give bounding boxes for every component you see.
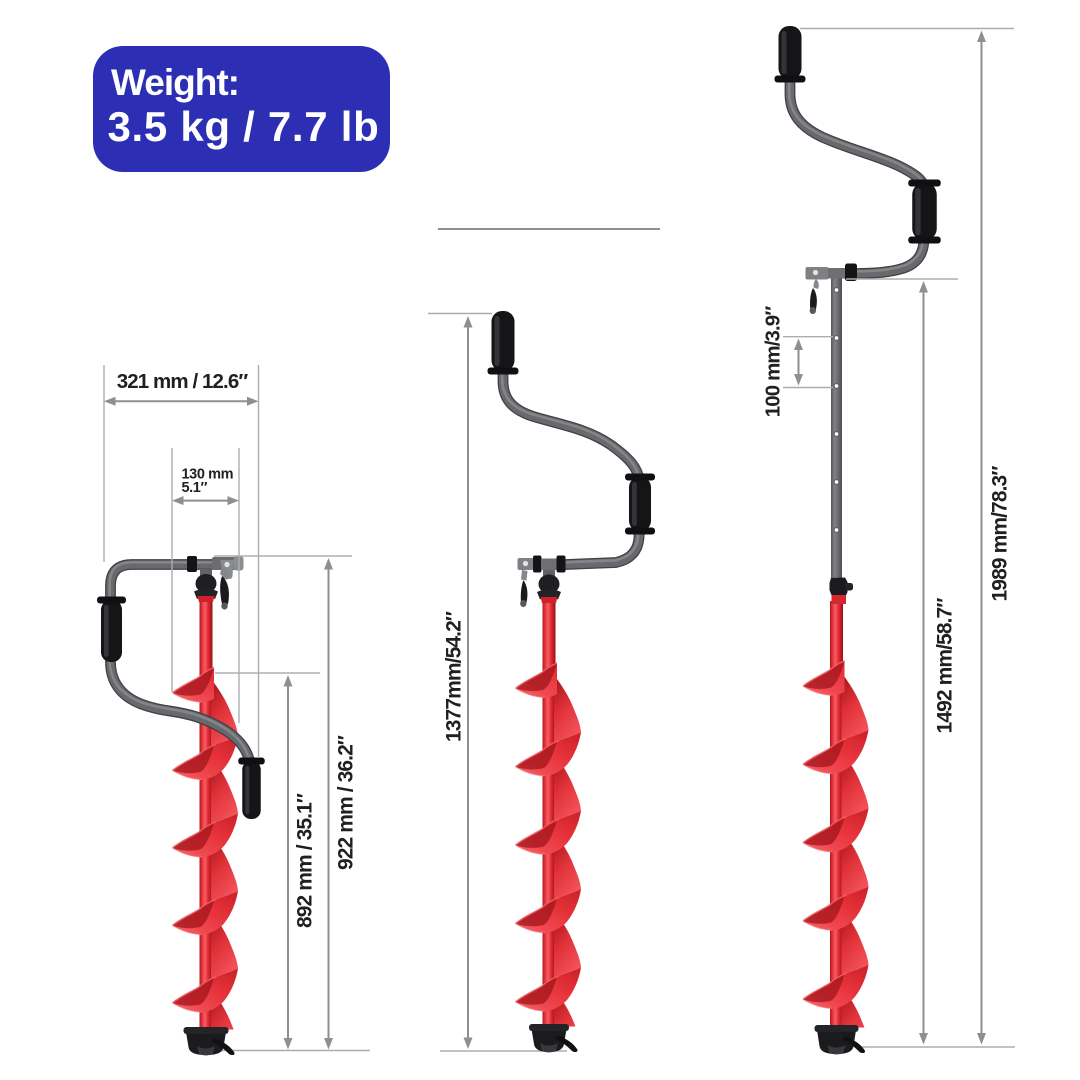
svg-text:321 mm / 12.6″: 321 mm / 12.6″ <box>117 370 249 393</box>
svg-text:1377mm/54.2″: 1377mm/54.2″ <box>443 611 466 742</box>
svg-text:1989 mm/78.3″: 1989 mm/78.3″ <box>989 466 1012 602</box>
svg-text:5.1″: 5.1″ <box>182 480 208 496</box>
svg-text:892 mm / 35.1″: 892 mm / 35.1″ <box>294 793 317 928</box>
svg-text:Weight:: Weight: <box>111 62 239 103</box>
svg-text:1492 mm/58.7″: 1492 mm/58.7″ <box>934 598 957 734</box>
svg-text:3.5 kg / 7.7 lb: 3.5 kg / 7.7 lb <box>108 103 380 150</box>
svg-text:100 mm/3.9″: 100 mm/3.9″ <box>762 306 785 418</box>
svg-text:922 mm / 36.2″: 922 mm / 36.2″ <box>335 735 358 870</box>
